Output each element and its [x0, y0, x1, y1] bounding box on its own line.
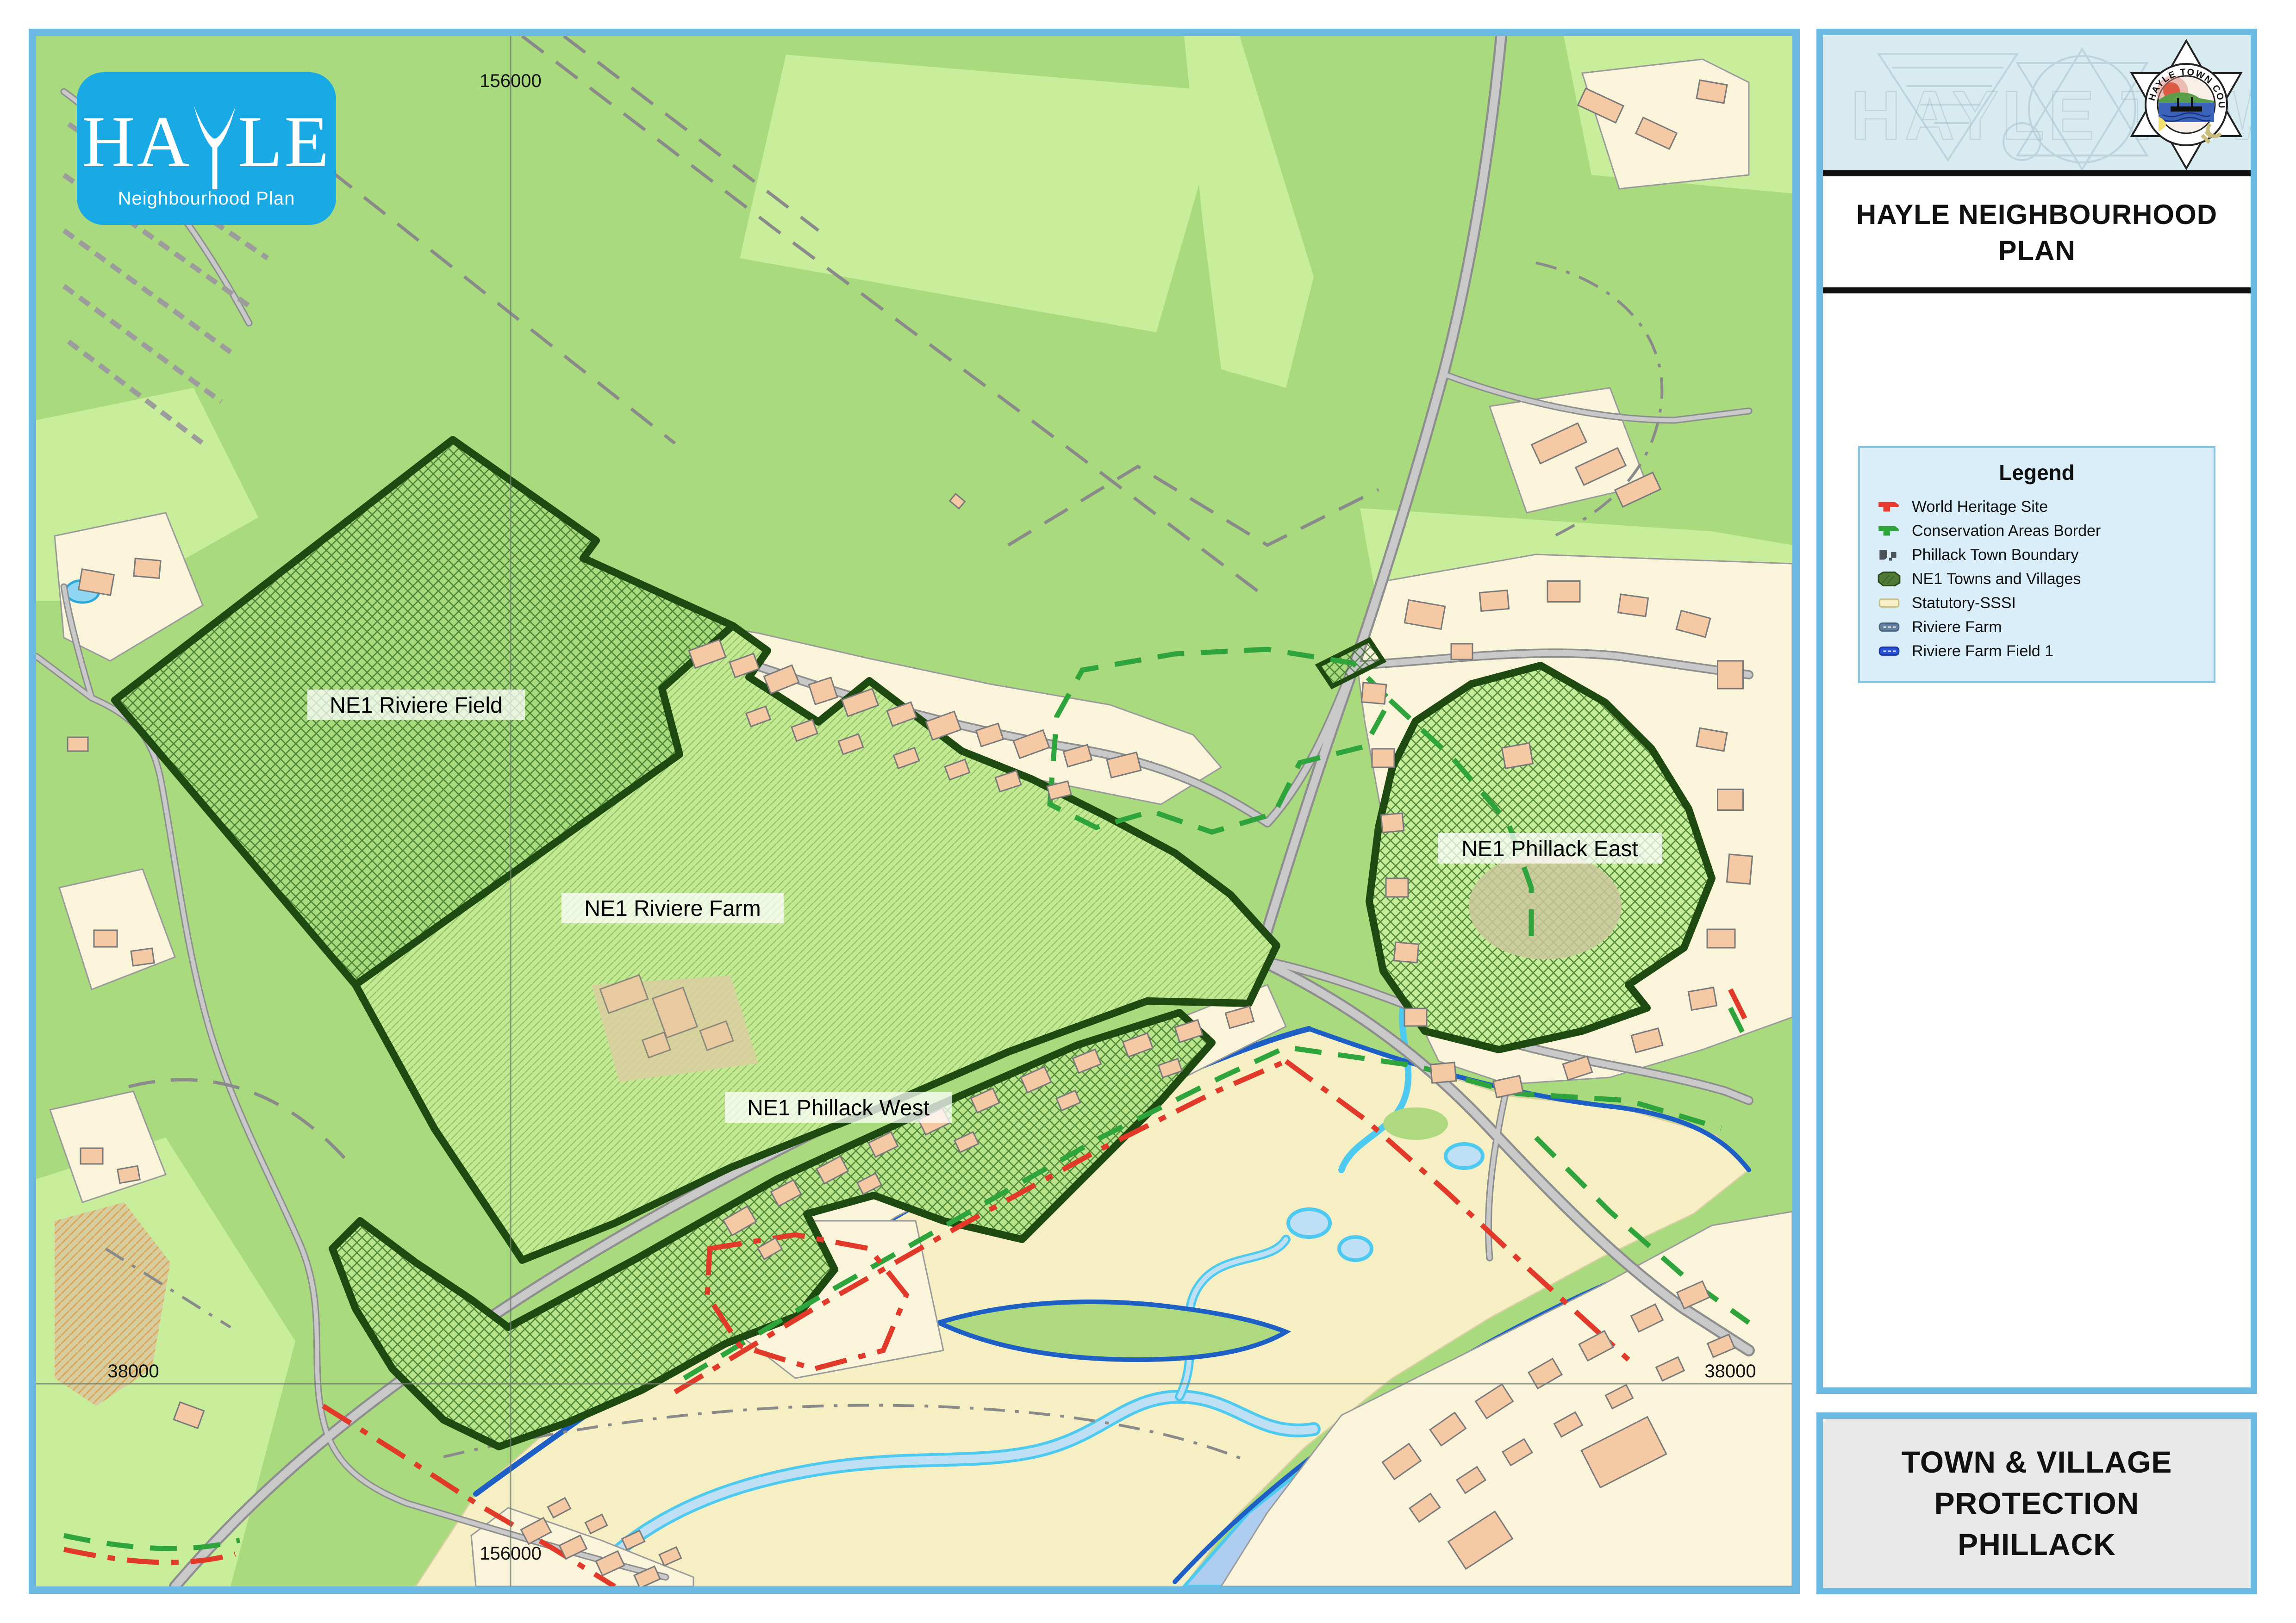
logo-text-ha: HA — [82, 106, 191, 179]
legend-label: Riviere Farm Field 1 — [1912, 642, 2053, 660]
riviere-farm-icon — [1876, 617, 1903, 637]
panel-title-line1: HAYLE NEIGHBOURHOOD — [1832, 197, 2241, 233]
legend-label: Statutory-SSSI — [1912, 594, 2016, 612]
phillack-boundary-icon — [1876, 545, 1903, 565]
legend-item-conservation: Conservation Areas Border — [1876, 521, 2198, 541]
label-phillack-west: NE1 Phillack West — [747, 1096, 930, 1120]
footer-line1: TOWN & VILLAGE — [1902, 1442, 2172, 1483]
legend-item-ne1: NE1 Towns and Villages — [1876, 569, 2198, 589]
hayle-logo: HA LE Neighbourhood Plan — [77, 72, 336, 225]
grid-label-top: 156000 — [480, 71, 541, 91]
legend-item-phillack-boundary: Phillack Town Boundary — [1876, 545, 2198, 565]
legend-item-world-heritage: World Heritage Site — [1876, 497, 2198, 516]
side-panel: HAYLE TOWN COUNCIL — [1816, 29, 2257, 1394]
crest-graphic: HAYLE TOWN COUNCIL — [1823, 35, 2251, 170]
page: 156000 156000 38000 38000 NE1 Riviere Fi… — [0, 0, 2296, 1623]
legend-label: Conservation Areas Border — [1912, 522, 2101, 540]
grid-label-left: 38000 — [107, 1361, 159, 1381]
sssi-icon — [1876, 593, 1903, 613]
logo-text-le: LE — [238, 106, 331, 179]
panel-title: HAYLE NEIGHBOURHOOD PLAN — [1823, 176, 2251, 287]
legend-label: NE1 Towns and Villages — [1912, 570, 2081, 588]
footer-line2: PROTECTION — [1934, 1483, 2140, 1524]
world-heritage-icon — [1876, 497, 1903, 516]
ne1-icon — [1876, 569, 1903, 589]
divider-top — [1823, 170, 2251, 176]
label-riviere-field: NE1 Riviere Field — [330, 693, 502, 718]
logo-y-icon — [190, 104, 240, 192]
panel-title-line2: PLAN — [1832, 233, 2241, 269]
conservation-icon — [1876, 521, 1903, 541]
label-riviere-farm: NE1 Riviere Farm — [584, 896, 761, 921]
legend-item-riviere-farm: Riviere Farm — [1876, 617, 2198, 637]
label-phillack-east: NE1 Phillack East — [1461, 837, 1638, 861]
grid-label-right: 38000 — [1704, 1361, 1756, 1381]
logo-subtitle: Neighbourhood Plan — [77, 188, 336, 209]
map-frame: 156000 156000 38000 38000 NE1 Riviere Fi… — [29, 29, 1800, 1594]
legend-label: World Heritage Site — [1912, 498, 2048, 516]
legend-item-sssi: Statutory-SSSI — [1876, 593, 2198, 613]
footer-line3: PHILLACK — [1958, 1524, 2116, 1565]
crest-band: HAYLE TOWN COUNCIL — [1823, 35, 2251, 170]
map-canvas: 156000 156000 38000 38000 NE1 Riviere Fi… — [36, 36, 1792, 1586]
legend-label: Riviere Farm — [1912, 618, 2002, 636]
riviere-farm-field1-icon — [1876, 641, 1903, 661]
legend: Legend World Heritage Site Conservation … — [1858, 446, 2215, 683]
legend-title: Legend — [1876, 460, 2198, 485]
grid-label-bottom: 156000 — [480, 1543, 541, 1564]
legend-label: Phillack Town Boundary — [1912, 546, 2078, 564]
legend-item-riviere-farm-field1: Riviere Farm Field 1 — [1876, 641, 2198, 661]
footer-title-box: TOWN & VILLAGE PROTECTION PHILLACK — [1816, 1412, 2257, 1594]
divider-bottom — [1823, 287, 2251, 293]
